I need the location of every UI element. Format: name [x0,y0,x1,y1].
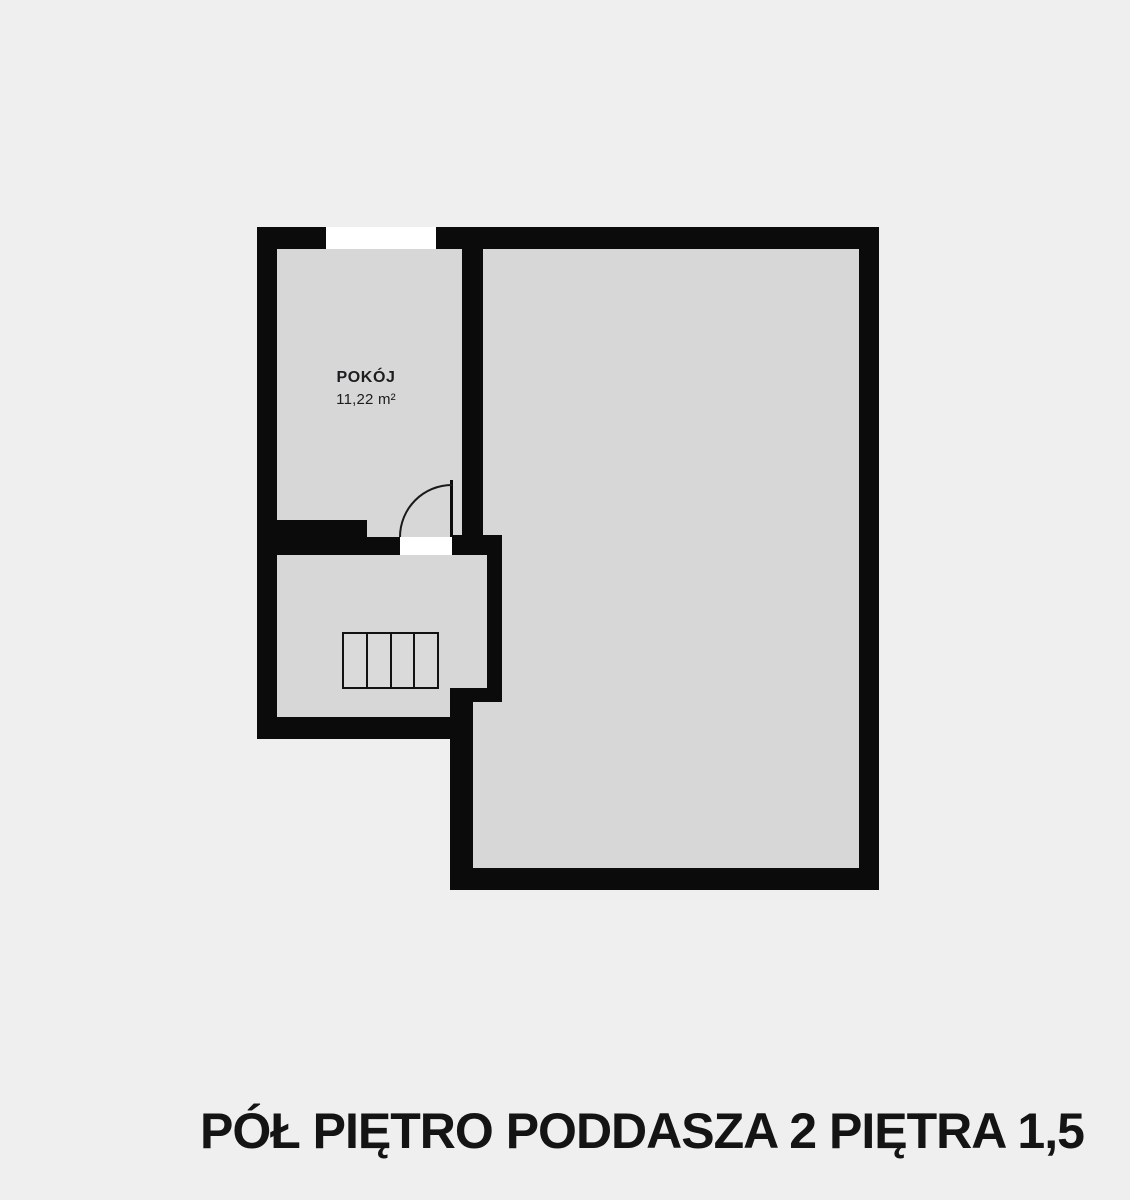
floor-plan: POKÓJ 11,22 m² [0,0,1130,1200]
pokoj-divider-wall [462,249,483,537]
bottom-wall [450,868,879,890]
floor-caption: PÓŁ PIĘTRO PODDASZA 2 PIĘTRA 1,5 [200,1102,1084,1160]
stair-bottom-wall [257,717,473,739]
lower-left-wall [450,688,473,890]
pokoj-step-wall [277,520,367,537]
stairs-icon [342,632,439,689]
floor-large-room [450,227,879,890]
floorplan-image: POKÓJ 11,22 m² PÓŁ PIĘTRO PODDASZA 2 PIĘ… [0,0,1130,1200]
right-wall [859,227,879,890]
stair-step [368,634,392,687]
stair-step [344,634,368,687]
door-opening [400,537,452,555]
stair-step [392,634,416,687]
door-jamb-wall [452,535,502,555]
left-wall [257,227,277,739]
stair-step [415,634,437,687]
room-name: POKÓJ [281,369,451,387]
room-label: POKÓJ 11,22 m² [281,369,451,408]
window-opening [326,227,436,249]
stair-top-wall [277,537,400,555]
stair-divider-wall [487,555,502,702]
room-area-value: 11,22 m² [281,391,451,408]
